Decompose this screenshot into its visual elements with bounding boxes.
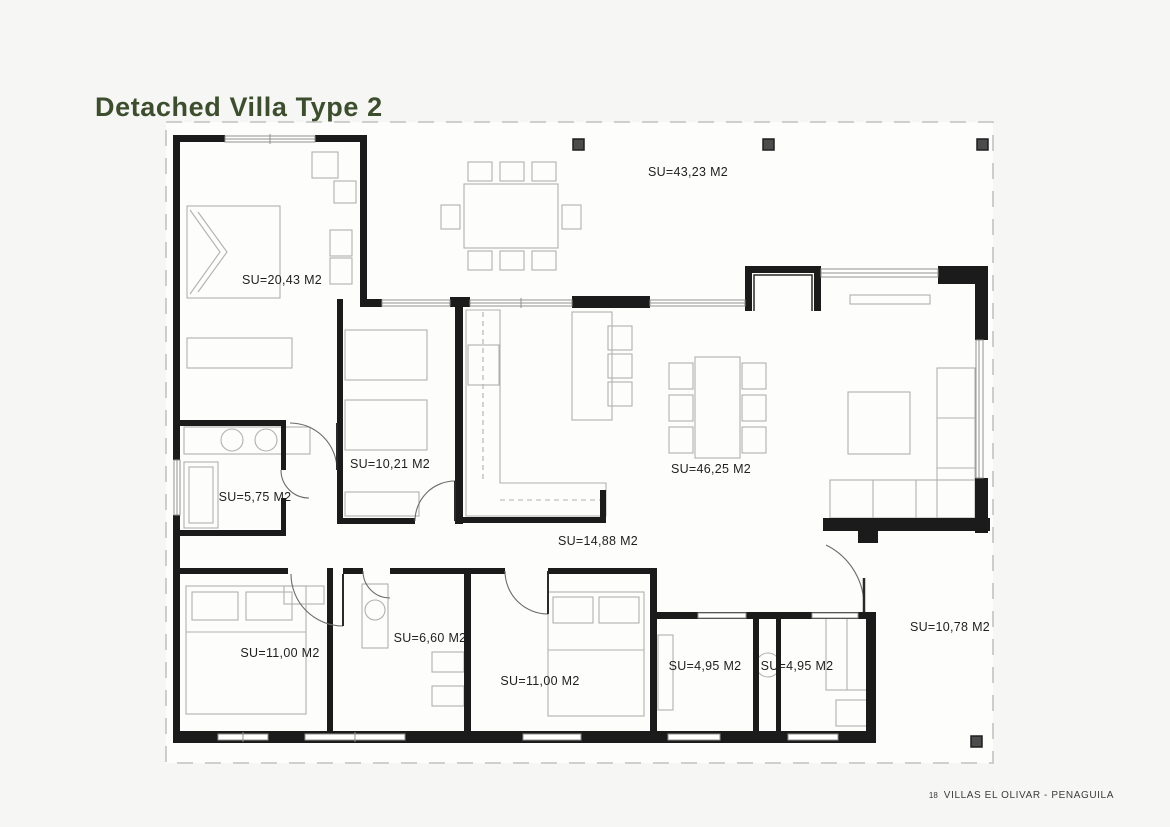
page-number: 18 <box>929 791 938 800</box>
window <box>225 134 315 144</box>
window <box>821 269 938 277</box>
room-label-storage-1: SU=4,95 M2 <box>669 659 742 673</box>
room-label-kitchen: SU=14,88 M2 <box>558 534 638 548</box>
room-label-bedroom-4: SU=11,00 M2 <box>500 674 579 688</box>
window <box>650 300 745 306</box>
window <box>976 340 983 478</box>
room-label-bedroom-3: SU=11,00 M2 <box>240 646 319 660</box>
window <box>218 732 268 742</box>
window <box>305 732 405 742</box>
room-label-living-dining: SU=46,25 M2 <box>671 462 751 476</box>
room-label-master-bedroom: SU=20,43 M2 <box>242 273 322 287</box>
brochure-page: { "page": { "title": "Detached Villa Typ… <box>0 0 1170 827</box>
room-label-bathroom-1: SU=5,75 M2 <box>219 490 292 504</box>
room-label-side-porch: SU=10,78 M2 <box>910 620 990 634</box>
room-label-terrace: SU=43,23 M2 <box>648 165 728 179</box>
project-name: VILLAS EL OLIVAR - PENAGUILA <box>944 790 1114 801</box>
window <box>382 300 450 306</box>
window <box>668 734 720 740</box>
pillar-icon <box>763 139 774 150</box>
window <box>174 460 180 515</box>
room-label-bedroom-2: SU=10,21 M2 <box>350 457 430 471</box>
window <box>812 613 858 618</box>
floor-plan-svg: SU=43,23 M2 SU=20,43 M2 SU=10,21 M2 SU=5… <box>0 0 1170 827</box>
pillar-icon <box>573 139 584 150</box>
window <box>470 298 572 308</box>
window <box>788 734 838 740</box>
window <box>698 613 746 618</box>
pillar-icon <box>977 139 988 150</box>
room-label-storage-2: SU=4,95 M2 <box>761 659 834 673</box>
room-label-bathroom-2: SU=6,60 M2 <box>394 631 467 645</box>
pillar-icon <box>971 736 982 747</box>
page-footer: 18 VILLAS EL OLIVAR - PENAGUILA <box>929 790 1114 801</box>
window <box>523 734 581 740</box>
floor-plan: SU=43,23 M2 SU=20,43 M2 SU=10,21 M2 SU=5… <box>0 0 1170 827</box>
